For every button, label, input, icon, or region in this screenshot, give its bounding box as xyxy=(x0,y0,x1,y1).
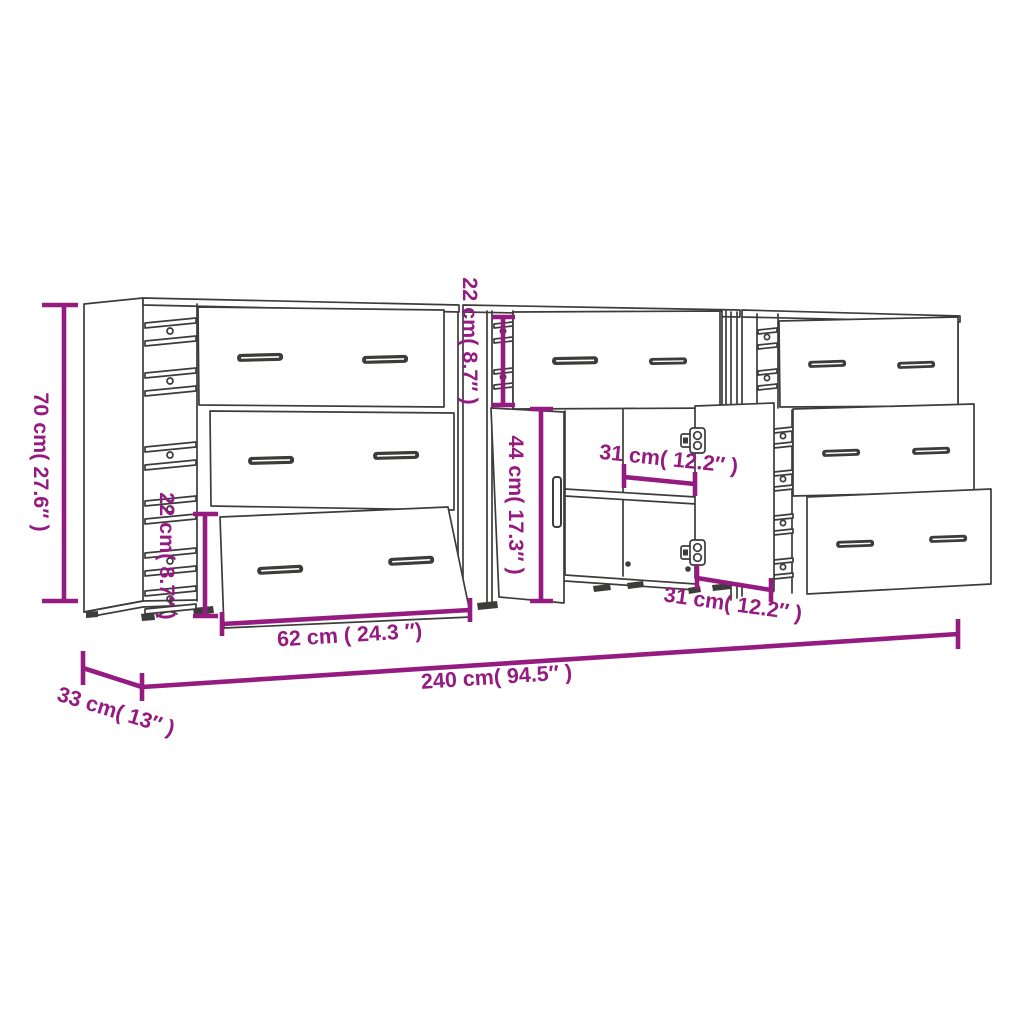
drawer-handle xyxy=(649,357,687,365)
dim-label-overall-height: 70 cm( 27.6″ ) xyxy=(29,392,53,531)
sideboard-dimension-diagram: 70 cm( 27.6″ ) 22 cm( 8.7″ ) 22 cm( 8.7″… xyxy=(0,0,1024,1024)
dim-label-left-drawer-height: 22 cm( 8.7″ ) xyxy=(155,492,179,619)
door-handle xyxy=(553,477,561,527)
left-top-drawer xyxy=(198,307,444,407)
shelf-pin-hole xyxy=(625,561,631,567)
drawer-handle xyxy=(552,356,598,365)
drawer-handle xyxy=(929,535,967,543)
dim-label-door-width-lower: 31 cm( 12.2″ ) xyxy=(662,582,803,625)
left-cabinet-side-panel xyxy=(84,298,143,612)
dim-line-middle-top-drawer-height xyxy=(492,317,515,405)
diagram-canvas: 70 cm( 27.6″ ) 22 cm( 8.7″ ) 22 cm( 8.7″… xyxy=(0,0,1024,1024)
right-top-drawer xyxy=(779,317,958,407)
drawer-handle xyxy=(822,449,860,457)
dim-line-overall-width xyxy=(142,619,958,701)
right-cabinet-lower-slides xyxy=(774,427,793,579)
drawer-handle xyxy=(248,456,294,465)
middle-cabinet-doors xyxy=(491,403,774,603)
dim-label-depth: 33 cm( 13″ ) xyxy=(54,682,177,740)
right-middle-drawer xyxy=(793,404,974,496)
drawer-handle xyxy=(897,361,935,369)
right-cabinet-lower-strip xyxy=(773,410,792,593)
middle-top-drawer xyxy=(513,311,722,409)
drawer-handle xyxy=(836,540,874,548)
middle-compartment-interior xyxy=(565,409,696,590)
left-cabinet xyxy=(84,298,498,628)
shelf-pin-hole xyxy=(685,566,691,572)
dim-label-door-height: 44 cm( 17.3″ ) xyxy=(504,435,528,574)
right-cabinet xyxy=(737,310,991,598)
drawer-handle xyxy=(912,447,950,455)
dim-label-middle-top-drawer-height: 22 cm( 8.7″ ) xyxy=(458,277,482,404)
right-cabinet-drawer-slides xyxy=(758,328,777,390)
drawer-handle xyxy=(362,355,408,364)
right-bottom-drawer xyxy=(807,489,991,594)
drawer-handle xyxy=(237,353,283,362)
dim-line-depth xyxy=(83,651,142,687)
shelf xyxy=(565,489,696,504)
left-middle-drawer xyxy=(210,411,454,510)
drawer-handle xyxy=(808,360,846,368)
drawer-handle xyxy=(373,451,419,460)
right-door-open xyxy=(681,403,774,591)
door-hinge xyxy=(681,540,705,565)
